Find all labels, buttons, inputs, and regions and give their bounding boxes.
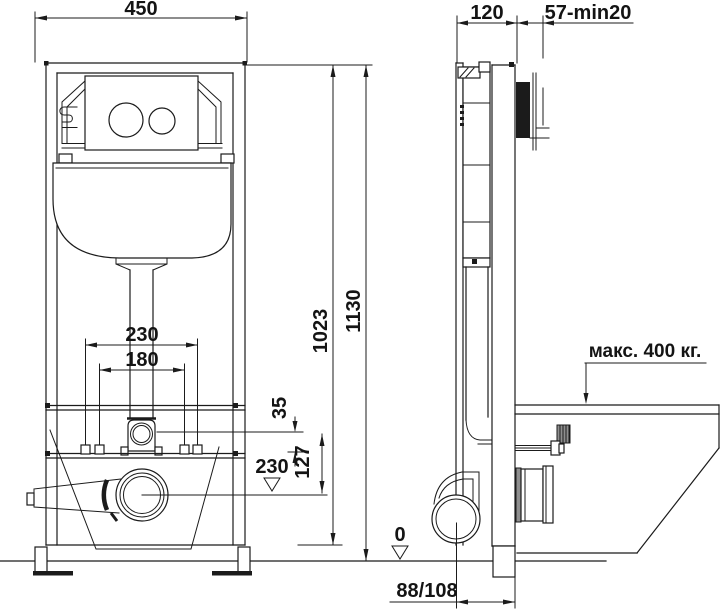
side-foot (493, 546, 515, 577)
level-floor-label: 0 (394, 524, 405, 546)
dim-flush-to-outlet: 127 (292, 434, 325, 493)
dim-plate-depth: 57-min20 (517, 2, 633, 58)
bolt-hole (81, 445, 90, 454)
dim-frame-depth-label: 120 (470, 2, 503, 24)
corner-weld-dot (243, 61, 248, 66)
drawing-canvas: 450 120 57-min20 1023 (0, 0, 720, 611)
dim-frame-height-label: 1023 (310, 309, 332, 354)
cistern-side (458, 62, 490, 267)
dim-overall-height-label: 1130 (343, 289, 365, 332)
level-outlet-label: 230 (255, 456, 288, 478)
connector-flange (543, 466, 553, 523)
front-view (27, 61, 252, 576)
foot-bracket (33, 571, 73, 576)
level-mark-floor: 0 (392, 524, 408, 559)
dim-frame-width: 450 (35, 0, 247, 62)
dim-frame-width-label: 450 (124, 0, 157, 20)
mounting-stud (557, 425, 570, 443)
dim-flush-to-outlet-label: 127 (292, 445, 314, 478)
corner-weld-dot (44, 61, 49, 66)
flush-pipe-side (466, 267, 492, 444)
max-load-label: макс. 400 кг. (589, 341, 702, 362)
dim-overall-height: 1130 (343, 65, 369, 561)
flush-button-small (149, 108, 175, 134)
dim-bolt-outer-label: 230 (125, 324, 158, 346)
bolt-hole (180, 445, 189, 454)
level-triangle (264, 478, 280, 491)
mounting-bolt (515, 441, 564, 455)
level-mark-outlet: 230 (255, 456, 288, 491)
side-front-column (492, 62, 515, 577)
dim-flush-to-bolts-label: 35 (269, 397, 291, 419)
actuator-plate-section (516, 73, 549, 150)
max-load-callout: макс. 400 кг. (584, 341, 707, 404)
technical-drawing: 450 120 57-min20 1023 (0, 0, 720, 611)
bolt-hole (95, 445, 104, 454)
bolt-hole (193, 445, 202, 454)
plate-bracket-right (198, 89, 216, 143)
plate-bracket-right (198, 81, 221, 143)
side-view (432, 62, 719, 577)
flush-button-large (109, 103, 143, 137)
dim-frame-depth: 120 (457, 2, 517, 63)
dim-plate-depth-label: 57-min20 (545, 2, 632, 24)
cistern-lid (458, 67, 480, 78)
foot-bracket (212, 571, 252, 576)
level-triangle (392, 546, 408, 559)
cistern-front (53, 163, 231, 258)
cistern-tab (59, 154, 72, 163)
plate-bracket-left (67, 89, 85, 143)
flush-plate (60, 76, 221, 150)
flush-elbow-front (121, 419, 162, 456)
dim-bolt-inner-label: 180 (125, 349, 158, 371)
plate-section-fill (516, 82, 530, 138)
drain-pipe-front (27, 479, 121, 521)
plate-bracket-left (62, 81, 85, 143)
dim-wall-to-drain-label: 88/108 (396, 580, 457, 602)
cistern-tab (221, 154, 234, 163)
